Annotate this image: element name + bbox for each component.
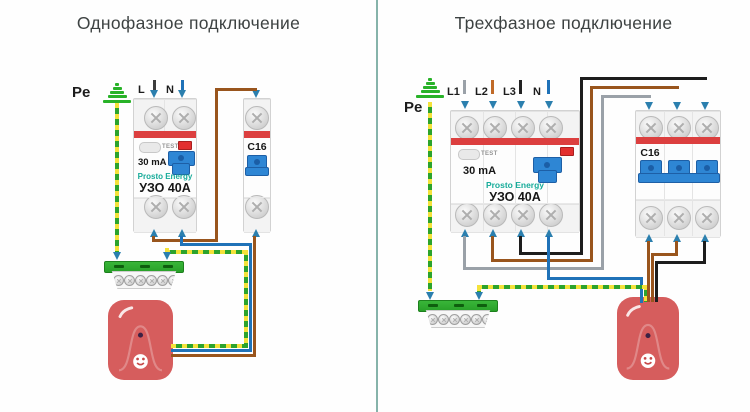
- test-button: [458, 149, 480, 160]
- wire-phase-l3: [519, 252, 583, 255]
- neutral-n-arrow-icon: [178, 90, 186, 98]
- terminal-screw: [144, 106, 168, 130]
- terminal-screw: [639, 206, 663, 230]
- wire-pe: [477, 285, 648, 289]
- water-heater-graphic: [108, 300, 173, 380]
- wire-pe: [165, 250, 248, 254]
- wire-phase: [171, 354, 256, 357]
- wire-phase-out: [655, 261, 658, 302]
- phase-l-label: L: [138, 84, 145, 96]
- terminal-screw: [511, 203, 535, 227]
- phase-l-arrow-icon: [150, 90, 158, 98]
- rcd-rating: 30 mA: [463, 165, 496, 177]
- terminal-screw: [511, 116, 535, 140]
- terminal-screw: [245, 195, 269, 219]
- rcd-4pole: TEST 30 mA Prosto Energy УЗО 40А: [450, 110, 580, 232]
- phase-l1-stub: [463, 80, 466, 94]
- neutral-n-label: N: [166, 84, 174, 96]
- wire-phase-l1: [601, 95, 651, 98]
- bus-screw: [482, 314, 493, 325]
- wire-phase-out: [655, 261, 706, 264]
- bus-screw: [168, 275, 179, 286]
- wire-phase-l2: [590, 86, 593, 262]
- earth-symbol-icon: [416, 77, 444, 98]
- test-button: [139, 142, 161, 153]
- breaker-model: C16: [636, 147, 664, 159]
- pe-arrow-icon: [113, 252, 121, 260]
- bus-screw: [157, 275, 168, 286]
- pe-arrow-icon: [163, 252, 171, 260]
- wire-neutral: [249, 243, 252, 352]
- rcd-brand: Prosto Energy: [451, 180, 579, 190]
- wire-neutral: [547, 236, 550, 280]
- terminal-screw: [455, 203, 479, 227]
- earth-bus-terminals: [423, 310, 493, 328]
- wire-phase-out: [647, 241, 650, 302]
- test-button-label: TEST: [481, 151, 498, 157]
- terminal-screw: [455, 116, 479, 140]
- wire-phase-l3: [580, 77, 707, 80]
- bus-screw: [460, 314, 471, 325]
- breaker-in-arrow-icon: [673, 102, 681, 110]
- terminal-screw: [695, 206, 719, 230]
- pe-label: Pe: [72, 84, 90, 101]
- right-panel-title: Трехфазное подключение: [377, 13, 750, 37]
- wiring-diagram-canvas: Однофазное подключение Pe L N: [0, 0, 750, 412]
- terminal-screw: [483, 116, 507, 140]
- breaker-red-stripe: [636, 137, 720, 144]
- terminal-screw: [667, 206, 691, 230]
- neutral-n-stub: [547, 80, 550, 94]
- pe-arrow-icon: [475, 292, 483, 300]
- wire-pe-drop: [428, 102, 432, 291]
- phase-l2-stub: [491, 80, 494, 94]
- wire-phase-l1: [463, 267, 604, 270]
- trip-indicator: [178, 141, 192, 150]
- wire-phase-l1: [601, 95, 604, 270]
- water-heater: [108, 300, 173, 380]
- heater-logo: [641, 354, 656, 369]
- trip-indicator: [560, 147, 574, 156]
- terminal-screw: [144, 195, 168, 219]
- bus-screw: [113, 275, 124, 286]
- wire-phase: [152, 239, 218, 242]
- wire-phase: [215, 88, 218, 242]
- wire-pe-drop: [115, 103, 119, 253]
- heater-logo: [133, 354, 148, 369]
- phase-l1-label: L1: [447, 86, 460, 98]
- wire-phase-out: [651, 253, 678, 256]
- bus-screw: [427, 314, 438, 325]
- phase-l2-arrow-icon: [489, 101, 497, 109]
- circuit-breaker-3pole: C16: [635, 110, 721, 237]
- phase-l3-stub: [519, 80, 522, 94]
- wire-phase: [215, 88, 257, 91]
- wire-phase: [253, 236, 256, 357]
- pe-arrow-icon: [426, 292, 434, 300]
- wire-phase-l1: [463, 236, 466, 270]
- rcd-red-stripe: [134, 131, 196, 138]
- breaker-in-arrow-icon: [645, 102, 653, 110]
- test-button-label: TEST: [162, 144, 179, 150]
- bus-screw: [146, 275, 157, 286]
- water-heater: [617, 297, 679, 380]
- breaker-red-stripe: [244, 131, 270, 138]
- terminal-screw: [539, 203, 563, 227]
- breaker-toggle-base: [245, 167, 269, 176]
- wire-phase-l3: [580, 77, 583, 255]
- earth-symbol-icon: [103, 82, 131, 103]
- bus-screw: [471, 314, 482, 325]
- bus-screw: [438, 314, 449, 325]
- circuit-breaker-1pole: C16: [243, 98, 271, 232]
- phase-l3-arrow-icon: [517, 101, 525, 109]
- bus-screw: [135, 275, 146, 286]
- breaker-in-arrow-icon: [701, 102, 709, 110]
- breaker-model: C16: [244, 141, 270, 153]
- terminal-screw: [483, 203, 507, 227]
- bus-screw: [124, 275, 135, 286]
- wire-pe: [244, 250, 248, 348]
- rcd-model: УЗО 40А: [134, 181, 196, 195]
- phase-l2-label: L2: [475, 86, 488, 98]
- terminal-screw: [172, 195, 196, 219]
- wire-phase-out: [651, 253, 654, 302]
- phase-l1-arrow-icon: [461, 101, 469, 109]
- heater-dot: [138, 333, 143, 338]
- neutral-n-arrow-icon: [545, 101, 553, 109]
- wire-phase-l2: [590, 86, 679, 89]
- breaker-in-arrow-icon: [252, 90, 260, 98]
- left-panel-title: Однофазное подключение: [0, 13, 377, 37]
- panel-divider: [376, 0, 378, 412]
- wire-pe: [171, 344, 248, 348]
- earth-bus-terminals: [109, 271, 179, 289]
- wire-phase-l2: [491, 259, 593, 262]
- breaker-toggle-base: [638, 173, 720, 183]
- phase-l3-label: L3: [503, 86, 516, 98]
- rcd-red-stripe: [451, 138, 579, 145]
- pe-label: Pe: [404, 99, 422, 116]
- wire-neutral: [171, 349, 252, 352]
- terminal-screw: [245, 106, 269, 130]
- rcd-2pole: TEST 30 mA Prosto Energy УЗО 40А: [133, 98, 197, 232]
- wire-neutral: [180, 243, 252, 246]
- water-heater-graphic: [617, 297, 679, 380]
- wire-neutral: [547, 277, 643, 280]
- rcd-model: УЗО 40А: [451, 190, 579, 204]
- rcd-brand: Prosto Energy: [134, 172, 196, 181]
- heater-dot: [645, 333, 650, 338]
- bus-screw: [449, 314, 460, 325]
- terminal-screw: [172, 106, 196, 130]
- neutral-n-label: N: [533, 86, 541, 98]
- terminal-screw: [539, 116, 563, 140]
- wire-neutral: [640, 277, 643, 303]
- rcd-rating: 30 mA: [138, 157, 167, 168]
